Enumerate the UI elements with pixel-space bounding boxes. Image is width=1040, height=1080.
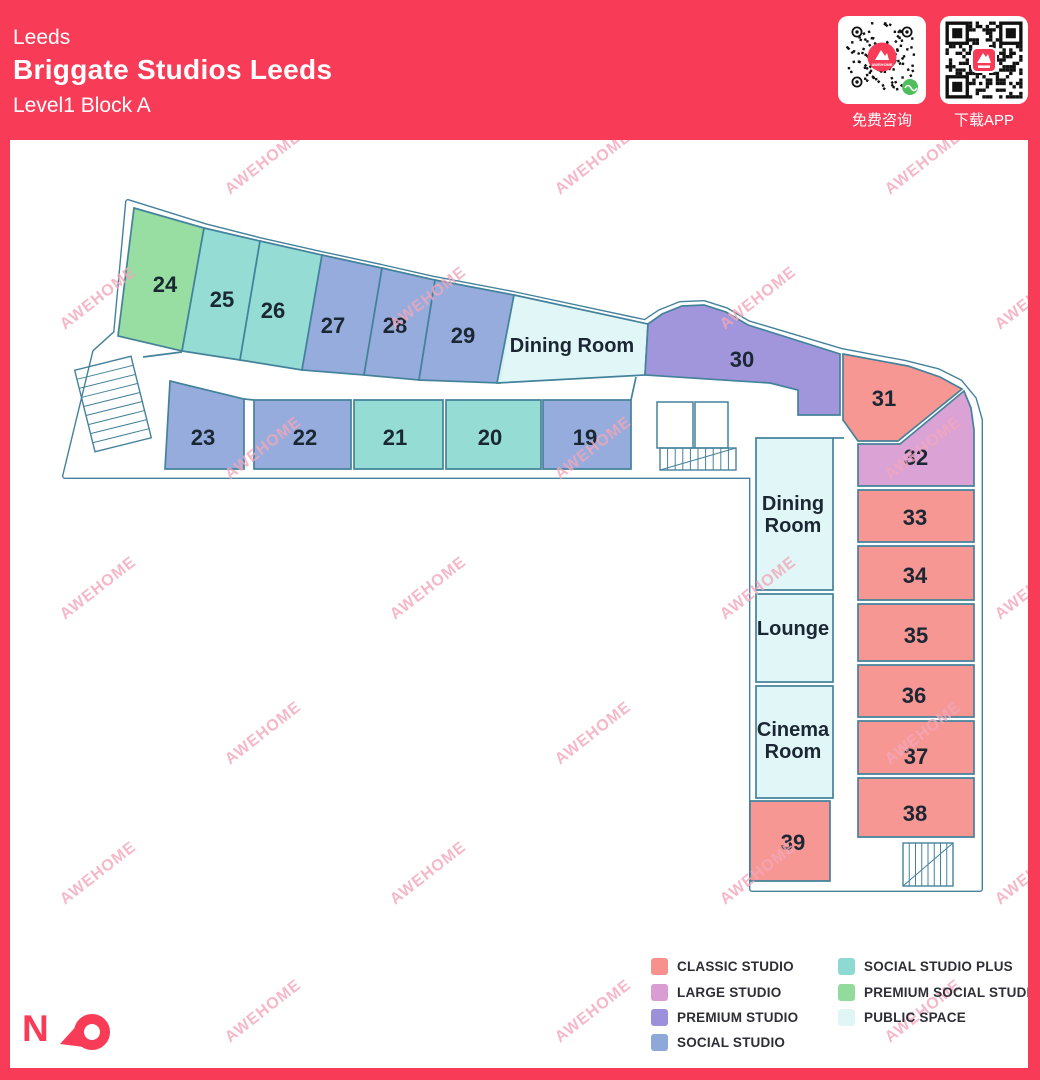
room-29-label: 29 [451,323,475,348]
room-34-label: 34 [903,563,928,588]
wechat-mini-qr-icon: AWEHOME [838,16,926,104]
legend-label: SOCIAL STUDIO [677,1035,785,1050]
room-26-label: 26 [261,298,285,323]
north-label: N [22,1008,49,1050]
watermark: AWEHOME [882,140,965,198]
room-20[interactable]: 20 [446,400,541,469]
social_plus-swatch [838,958,855,975]
room-31-label: 31 [872,386,896,411]
watermark: AWEHOME [552,698,635,768]
room-cinema[interactable]: CinemaRoom [756,686,833,798]
room-35[interactable]: 35 [858,604,974,661]
public-swatch [838,1009,855,1026]
floorplan: 242526272829Dining Room30313233343536373… [10,140,1028,1068]
legend-label: PUBLIC SPACE [864,1010,966,1025]
room-30-label: 30 [730,347,754,372]
watermark: AWEHOME [222,976,305,1046]
social-swatch [651,1034,668,1051]
room-20-label: 20 [478,425,502,450]
wechat-consult-qr[interactable]: AWEHOME [838,16,926,104]
north-indicator: N [18,1002,138,1062]
watermark: AWEHOME [552,976,635,1046]
legend-item-premium_social: PREMIUM SOCIAL STUDIO [838,984,1028,1001]
watermark: AWEHOME [992,553,1028,623]
legend-label: SOCIAL STUDIO PLUS [864,959,1013,974]
header-level-block: Level1 Block A [13,94,151,118]
room-21-label: 21 [383,425,407,450]
room-35-label: 35 [904,623,928,648]
room-dining-right-label: DiningRoom [762,493,824,537]
room-25-label: 25 [210,287,234,312]
watermark: AWEHOME [222,698,305,768]
legend-label: LARGE STUDIO [677,985,781,1000]
legend-item-social_plus: SOCIAL STUDIO PLUS [838,958,1013,975]
utility-room [695,402,728,448]
app-qr-label: 下载APP [940,109,1028,130]
watermark: AWEHOME [222,140,305,198]
page: Leeds Briggate Studios Leeds Level1 Bloc… [0,0,1040,1080]
legend-item-premium: PREMIUM STUDIO [651,1009,798,1026]
legend-item-classic: CLASSIC STUDIO [651,958,794,975]
legend-label: PREMIUM SOCIAL STUDIO [864,985,1028,1000]
compass-icon [54,1002,118,1060]
legend-item-social: SOCIAL STUDIO [651,1034,785,1051]
room-dining-top-label: Dining Room [510,335,634,357]
large-swatch [651,984,668,1001]
room-38[interactable]: 38 [858,778,974,837]
watermark: AWEHOME [57,838,140,908]
room-cinema-label: CinemaRoom [757,719,830,763]
legend-item-large: LARGE STUDIO [651,984,781,1001]
consult-qr-label: 免费咨询 [838,109,926,130]
room-36-label: 36 [902,683,926,708]
room-33-label: 33 [903,505,927,530]
room-38-label: 38 [903,801,927,826]
watermark: AWEHOME [992,838,1028,908]
room-27-label: 27 [321,313,345,338]
watermark: AWEHOME [387,553,470,623]
room-33[interactable]: 33 [858,490,974,542]
room-21[interactable]: 21 [354,400,443,469]
watermark: AWEHOME [717,263,800,333]
legend-item-public: PUBLIC SPACE [838,1009,966,1026]
watermark: AWEHOME [992,263,1028,333]
room-lounge-label: Lounge [757,618,829,640]
premium_social-swatch [838,984,855,1001]
legend-label: CLASSIC STUDIO [677,959,794,974]
room-24-label: 24 [153,272,178,297]
room-dining-top[interactable]: Dining Room [497,295,648,383]
premium-swatch [651,1009,668,1026]
header-city: Leeds [13,26,70,50]
legend-label: PREMIUM STUDIO [677,1010,798,1025]
app-qr-icon [940,16,1028,104]
watermark: AWEHOME [387,838,470,908]
watermark: AWEHOME [57,553,140,623]
svg-text:AWEHOME: AWEHOME [871,62,892,67]
room-34[interactable]: 34 [858,546,974,600]
watermark: AWEHOME [552,140,635,198]
legend: CLASSIC STUDIOLARGE STUDIOPREMIUM STUDIO… [651,958,1028,1058]
classic-swatch [651,958,668,975]
floorplan-canvas: 242526272829Dining Room30313233343536373… [10,140,1028,1068]
room-lounge[interactable]: Lounge [756,594,833,682]
app-download-qr[interactable] [940,16,1028,104]
utility-room [657,402,693,448]
page-title: Briggate Studios Leeds [13,54,332,86]
room-23-label: 23 [191,425,215,450]
